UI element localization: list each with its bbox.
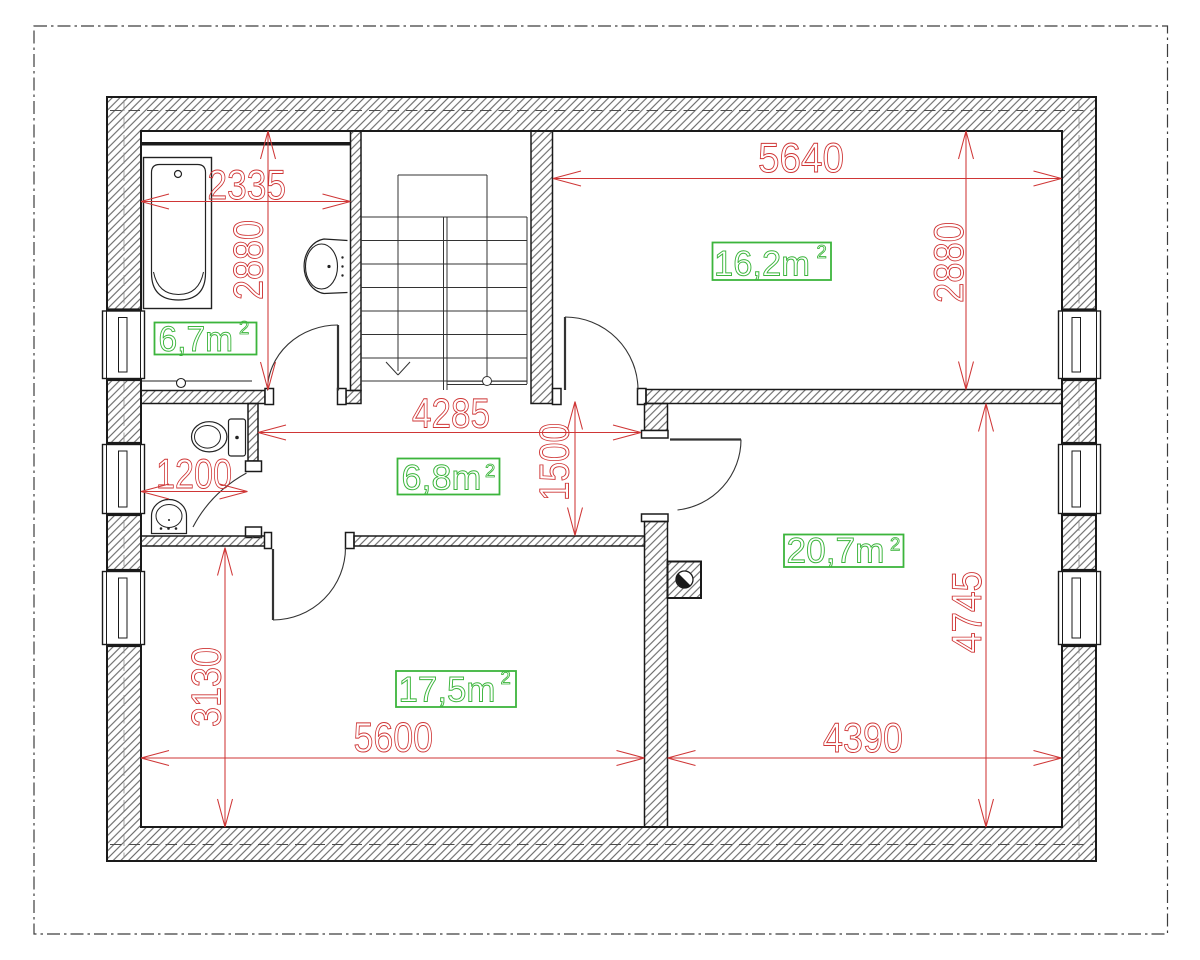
- svg-text:17,5m: 17,5m: [399, 671, 496, 710]
- svg-text:6,8m: 6,8m: [402, 459, 482, 498]
- svg-text:2: 2: [239, 317, 249, 338]
- svg-text:2335: 2335: [208, 161, 287, 208]
- svg-text:2: 2: [501, 667, 511, 688]
- svg-text:5600: 5600: [354, 714, 434, 761]
- svg-text:2: 2: [485, 460, 495, 481]
- svg-text:4285: 4285: [412, 390, 490, 437]
- svg-text:4745: 4745: [943, 571, 990, 653]
- svg-text:2: 2: [890, 534, 900, 555]
- svg-text:4390: 4390: [823, 714, 903, 761]
- svg-text:1500: 1500: [531, 423, 578, 501]
- svg-text:2880: 2880: [225, 220, 272, 300]
- svg-text:16,2m: 16,2m: [714, 245, 810, 284]
- svg-text:1200: 1200: [156, 450, 232, 497]
- svg-text:2: 2: [817, 241, 827, 262]
- svg-text:3130: 3130: [183, 647, 230, 727]
- svg-text:20,7m: 20,7m: [787, 532, 885, 571]
- svg-text:2880: 2880: [925, 222, 972, 303]
- svg-text:6,7m: 6,7m: [159, 320, 234, 359]
- svg-text:5640: 5640: [758, 134, 844, 181]
